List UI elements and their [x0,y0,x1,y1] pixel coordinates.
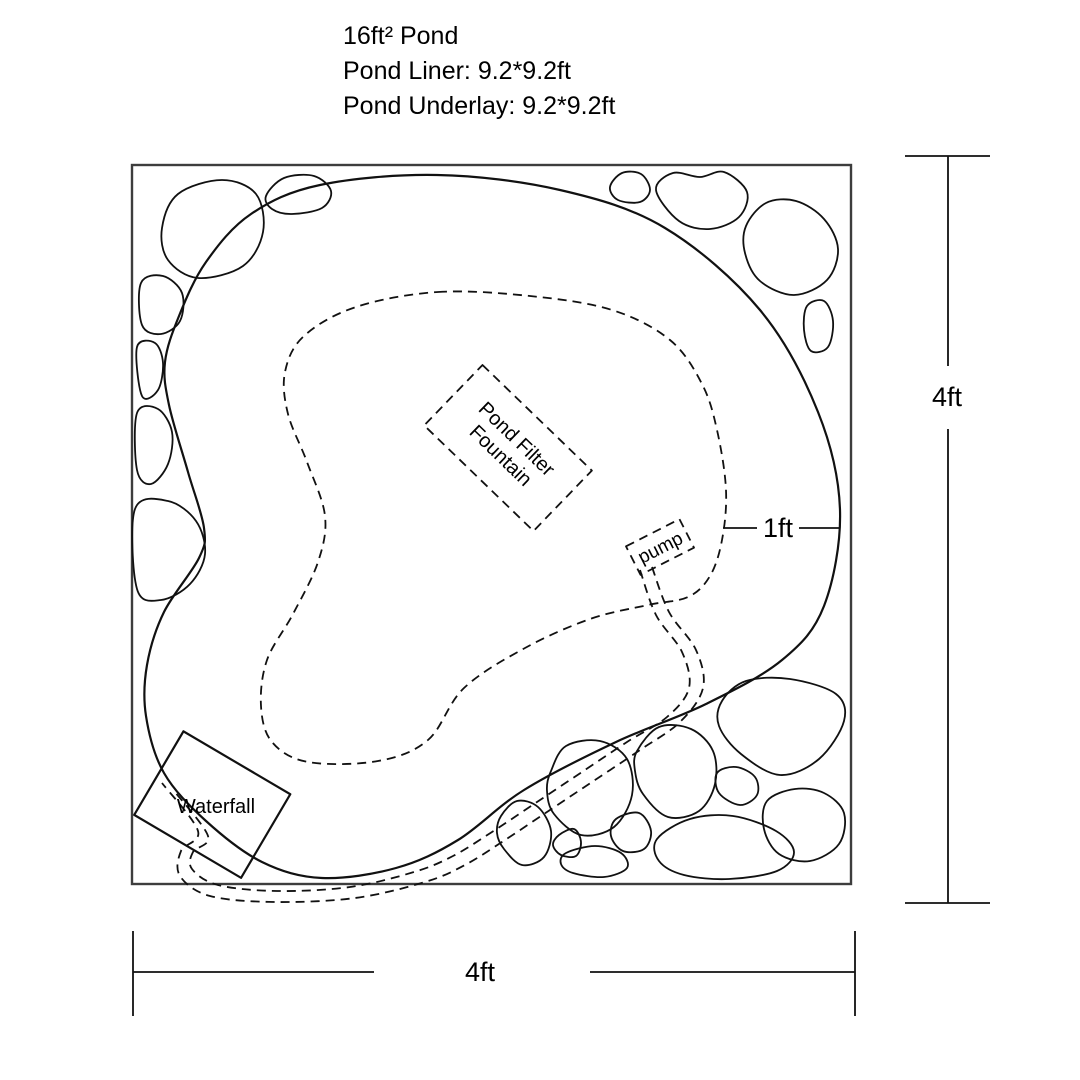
title-line-3: Pond Underlay: 9.2*9.2ft [343,92,615,120]
rock [715,767,758,805]
title-line-1: 16ft² Pond [343,22,458,50]
rock [265,175,331,214]
rock [161,180,263,278]
waterfall-label: Waterfall [177,796,255,818]
rock [743,199,838,295]
title-block: 16ft² Pond Pond Liner: 9.2*9.2ft Pond Un… [343,22,615,120]
height-label: 4ft [932,382,963,412]
rock [135,406,173,484]
rock [139,275,184,334]
plan-boundary [132,165,851,884]
pump-tubing-line-2 [175,570,690,891]
rock [804,300,833,352]
rock [611,812,652,852]
rock [634,725,716,818]
rock [610,172,650,203]
rock [132,499,205,601]
width-label: 4ft [465,957,496,987]
title-line-2: Pond Liner: 9.2*9.2ft [343,57,571,85]
pond-liner-inner-boundary [261,291,726,764]
dimension-height: 4ft [905,156,990,903]
rock [560,846,628,877]
pump-label: pump [635,528,687,568]
pond-outline [144,175,840,878]
rock [717,678,845,775]
waterfall: Waterfall [134,731,290,878]
rock-cluster [132,171,845,879]
pond-filter-fountain: Pond Filter Fountain [424,365,592,531]
pond-plan-page: 16ft² Pond Pond Liner: 9.2*9.2ft Pond Un… [0,0,1080,1080]
pump: pump [626,519,694,575]
dimension-width: 4ft [133,931,855,1016]
rock [763,789,845,862]
pond-plan-diagram: 16ft² Pond Pond Liner: 9.2*9.2ft Pond Un… [0,0,1080,1080]
rock [136,341,163,399]
dimension-shelf-offset: 1ft [723,513,839,543]
rock [656,171,748,229]
shelf-offset-label: 1ft [763,513,794,543]
